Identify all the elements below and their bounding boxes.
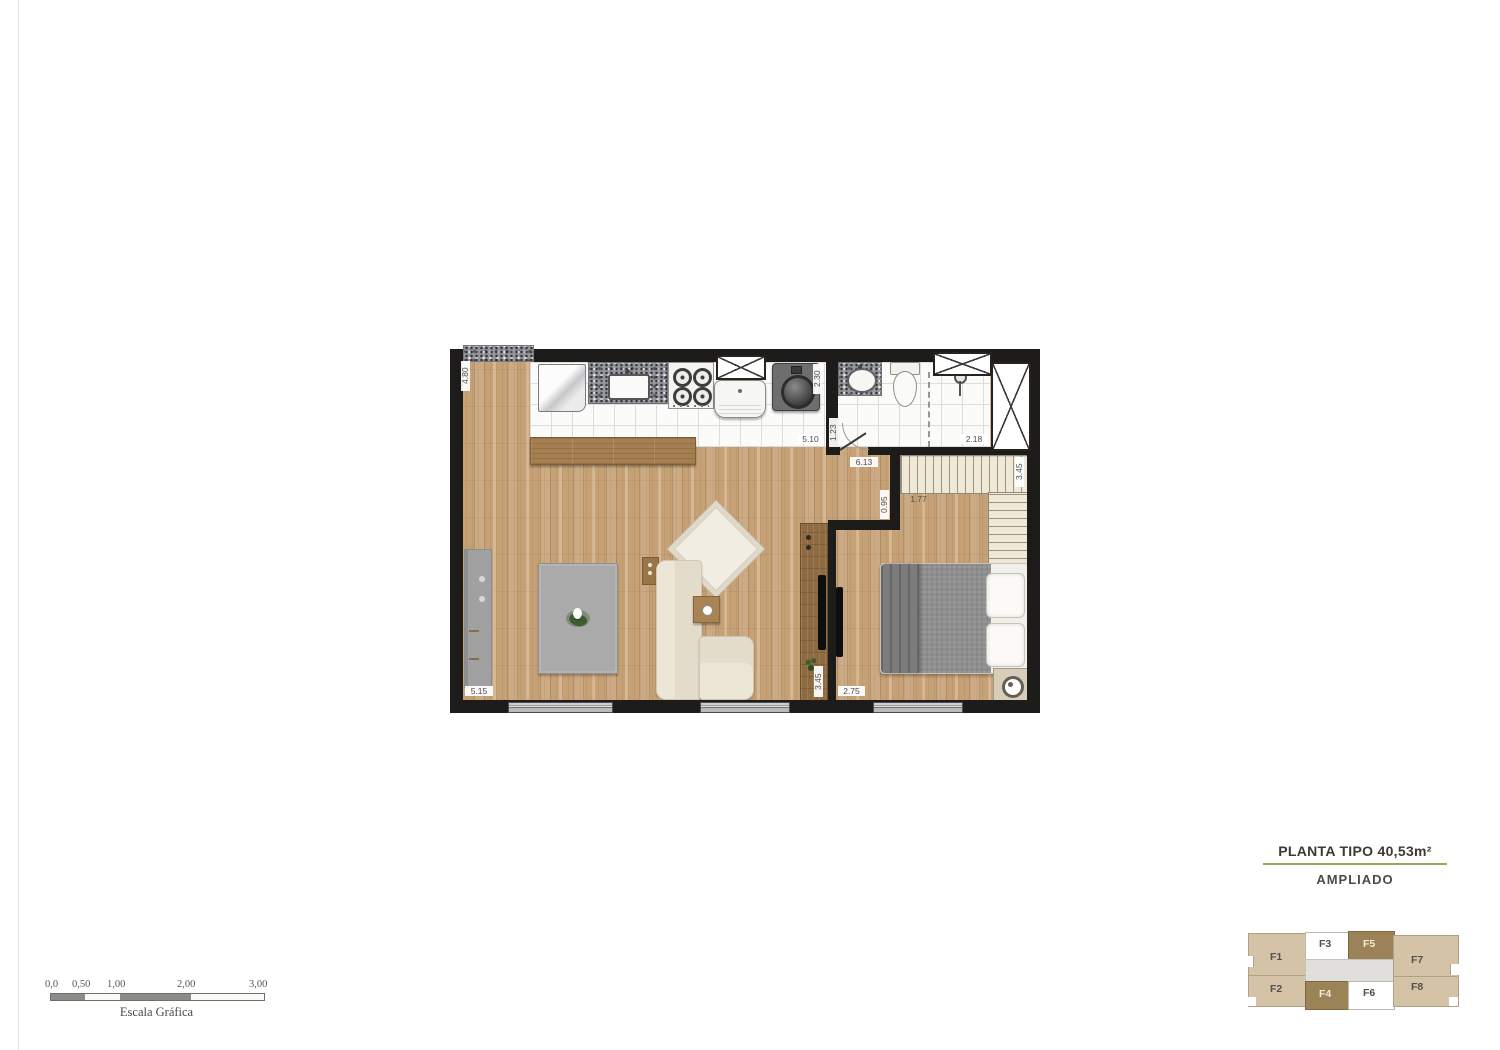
dim-living-width: 5.15 [465,686,493,696]
laundry-tub [714,380,766,418]
bedside-lamp-dot [1008,682,1013,687]
centerpiece-flower [573,608,582,619]
kitchen-tap [625,369,630,374]
bed [880,563,1029,674]
tv-bedroom [836,587,843,657]
kitchen-counter [588,362,668,404]
sideboard-line [469,630,479,632]
scale-segment-dark [120,994,191,1000]
scale-caption: Escala Gráfica [50,1005,263,1020]
dim-bath-width: 2.18 [960,434,988,444]
granite-ledge [463,345,534,362]
plan-title: PLANTA TIPO 40,53m² [1255,843,1455,859]
shower-stem [959,381,961,396]
shelf-dot [648,571,652,575]
keyplan-left-block [1248,933,1308,1007]
sideboard-knob [479,596,485,602]
tub-drain [738,389,742,393]
dim-closet-height: 3.45 [1015,457,1024,487]
scale-tick: 0,0 [45,979,58,990]
wall-bath-bottom-left [826,447,840,455]
bed-fold [881,564,919,673]
stove-knobs [673,405,709,407]
keyplan-label-f3: F3 [1319,938,1331,950]
burner [693,387,712,406]
keyplan-left-divider [1249,975,1306,976]
keyplan-left-notch [1245,956,1254,967]
overhead-cabinet [716,355,766,380]
dim-laundry-side: 2.30 [813,364,822,394]
shaft [991,362,1031,451]
plan-subtitle: AMPLIADO [1255,872,1455,887]
bedside-lamp [1002,676,1024,698]
dim-left-height: 4.80 [461,361,470,391]
burner [673,387,692,406]
title-block: PLANTA TIPO 40,53m² AMPLIADO [1255,843,1455,887]
dim-tv-wall-height: 3.45 [814,666,823,697]
page-edge-line [18,0,19,1050]
scale-segment-light [85,994,120,1000]
window-bedroom [873,702,963,713]
burner [673,368,692,387]
bed-pillow [986,623,1025,667]
dim-hall-side: 1.23 [829,418,838,447]
decor-dot [806,535,811,540]
dim-bedroom-width: 2.75 [838,686,865,696]
title-underline [1263,863,1447,865]
keyplan-label-f5: F5 [1363,938,1375,950]
wall-nook-right [890,455,900,530]
sideboard [464,549,492,688]
sofa [656,560,702,700]
fridge [538,364,586,412]
dim-living-length: 6.13 [850,457,878,467]
keyplan-label-f7: F7 [1411,954,1423,966]
keyplan-left-step [1248,997,1256,1006]
stove [668,362,714,409]
keyplan-label-f4: F4 [1319,988,1331,1000]
shower-partition [928,372,930,447]
tub-ridges [719,405,761,414]
shelf-dot [648,563,652,567]
floor-plan: 4.80 5.10 2.30 1.23 2.18 3.45 6.13 0.95 … [450,349,1040,713]
page: 4.80 5.10 2.30 1.23 2.18 3.45 6.13 0.95 … [0,0,1500,1050]
scale-bar: 0,0 0,50 1,00 2,00 3,00 Escala Gráfica [45,975,275,1023]
cup [702,605,713,616]
wardrobe-top [900,455,1029,494]
decor-dot [806,545,811,550]
scale-tick: 2,00 [177,979,195,990]
key-plan: F1 F2 F3 F4 F5 F6 F7 F8 [1245,928,1460,1010]
side-table [693,596,720,623]
keyplan-right-step [1449,997,1458,1006]
sideboard-knob [479,576,485,582]
window-living [700,702,790,713]
scale-tick: 0,50 [72,979,90,990]
bed-pillow [986,573,1025,618]
dim-kitchen-width: 5.10 [797,434,824,444]
bedside-table [993,668,1029,702]
sofa-chaise [699,636,754,700]
keyplan-label-f8: F8 [1411,981,1423,993]
washer-drum [781,375,815,409]
keyplan-corridor [1305,959,1395,983]
scale-ruler [50,993,265,1001]
dim-closet-width: 1.77 [905,494,932,504]
keyplan-right-divider [1393,976,1457,977]
keyplan-label-f6: F6 [1363,987,1375,999]
burner [693,368,712,387]
kitchen-sink [608,374,650,400]
wall-living-bedroom [828,520,836,713]
keyplan-right-notch [1450,964,1459,975]
dining-table [538,563,618,674]
wall-nook-bottom [828,520,900,530]
keyplan-label-f2: F2 [1270,983,1282,995]
sideboard-line [469,658,479,660]
bath-cabinet [933,352,992,376]
wall-left [450,349,463,713]
keyplan-label-f1: F1 [1270,951,1282,963]
window-dining [508,702,613,713]
scale-segment-light [191,994,264,1000]
tv-living [818,575,826,650]
bar-counter [530,437,696,465]
bath-vanity [838,362,882,396]
bath-tap [858,365,862,369]
scale-segment-dark [51,994,85,1000]
bath-sink [847,368,877,393]
scale-tick: 1,00 [107,979,125,990]
dim-nook-width: 0.95 [880,490,889,519]
scale-tick: 3,00 [249,979,267,990]
washer-panel [791,366,802,374]
